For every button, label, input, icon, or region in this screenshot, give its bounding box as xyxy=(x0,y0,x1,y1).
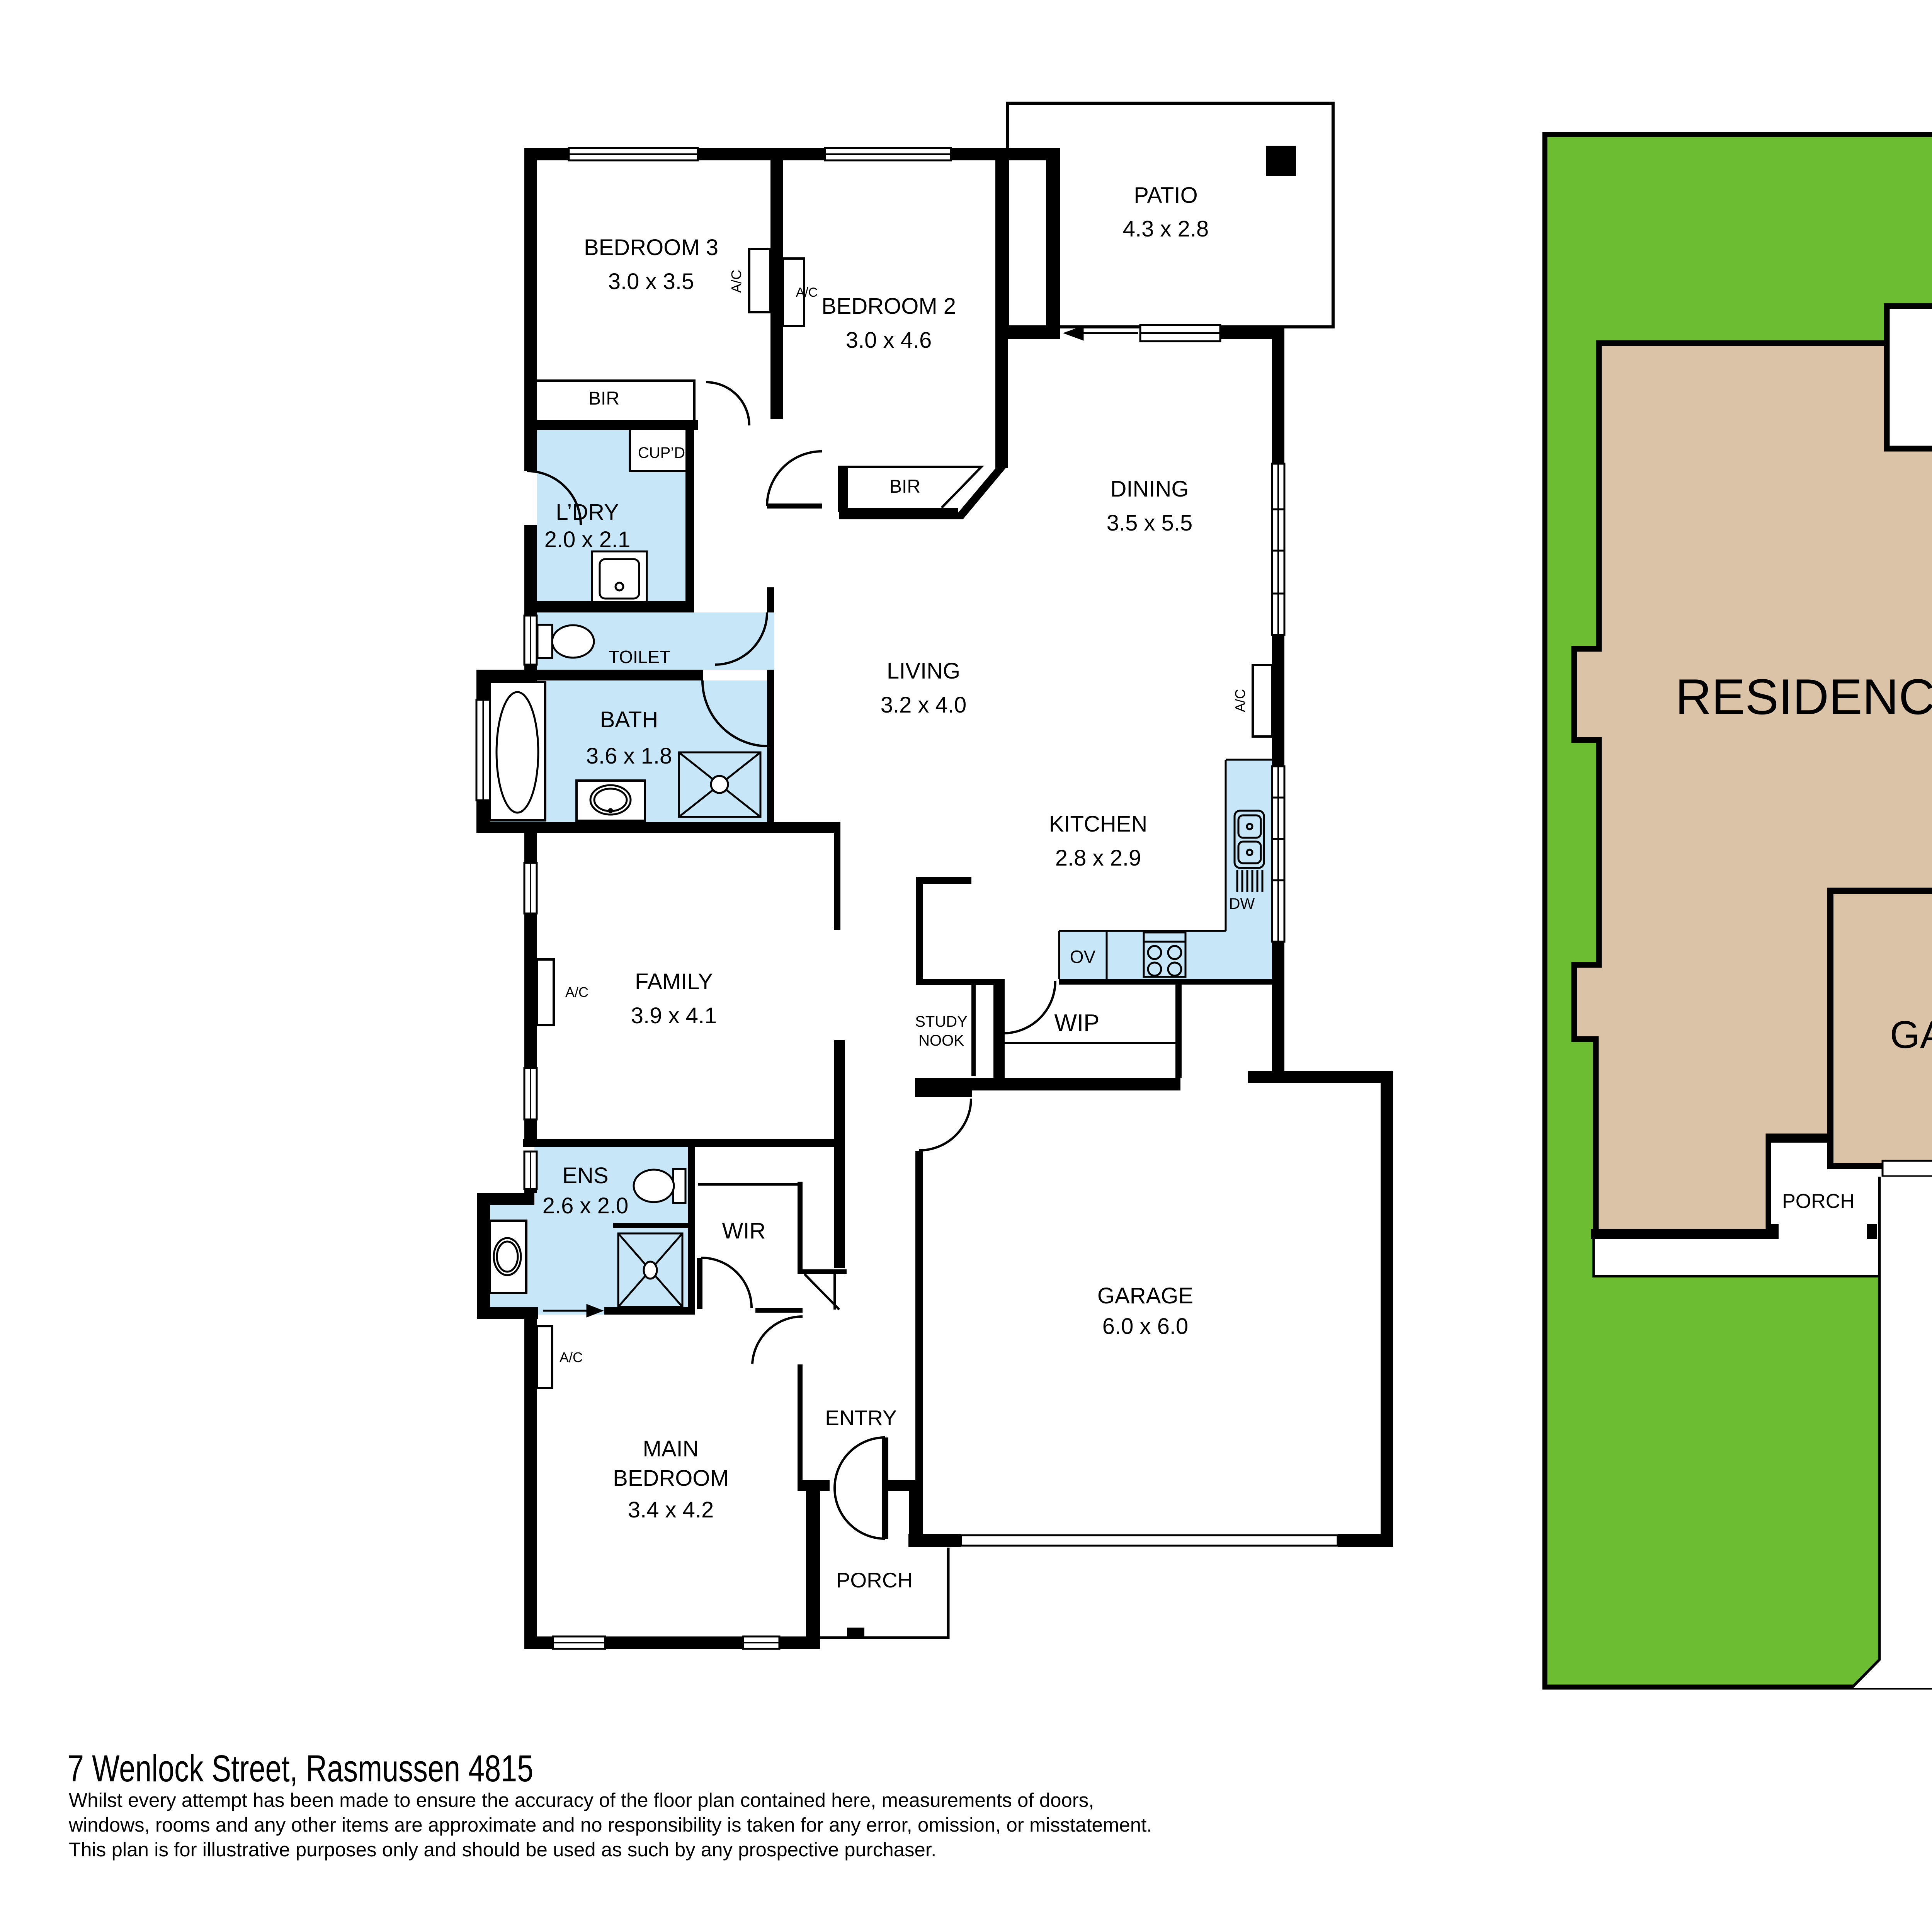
svg-text:3.9 x 4.1: 3.9 x 4.1 xyxy=(631,1003,717,1028)
svg-text:BEDROOM: BEDROOM xyxy=(613,1466,729,1491)
svg-text:BIR: BIR xyxy=(889,476,920,497)
svg-text:4.3 x 2.8: 4.3 x 2.8 xyxy=(1123,216,1209,242)
svg-text:A/C: A/C xyxy=(560,1349,583,1365)
svg-text:3.0 x 4.6: 3.0 x 4.6 xyxy=(846,328,932,353)
svg-text:3.2 x 4.0: 3.2 x 4.0 xyxy=(881,692,966,718)
svg-text:BIR: BIR xyxy=(588,388,619,409)
svg-text:TOILET: TOILET xyxy=(609,647,670,667)
svg-text:PORCH: PORCH xyxy=(836,1568,913,1592)
svg-text:RESIDENCE: RESIDENCE xyxy=(1675,668,1932,725)
svg-text:L’DRY: L’DRY xyxy=(556,500,619,525)
svg-text:GARAGE: GARAGE xyxy=(1097,1283,1193,1308)
svg-text:DW: DW xyxy=(1229,895,1255,912)
svg-text:Whilst every attempt has been: Whilst every attempt has been made to en… xyxy=(69,1789,1094,1811)
svg-text:ENTRY: ENTRY xyxy=(825,1406,896,1430)
svg-text:WIR: WIR xyxy=(722,1218,766,1243)
svg-text:PATIO: PATIO xyxy=(1134,183,1197,208)
svg-text:BEDROOM 2: BEDROOM 2 xyxy=(821,294,956,319)
svg-text:BATH: BATH xyxy=(600,707,658,732)
svg-text:A/C: A/C xyxy=(728,270,744,293)
svg-text:A/C: A/C xyxy=(796,285,818,300)
svg-text:NOOK: NOOK xyxy=(918,1032,964,1049)
svg-text:PORCH: PORCH xyxy=(1782,1190,1855,1213)
svg-text:OV: OV xyxy=(1070,947,1096,967)
svg-text:6.0 x 6.0: 6.0 x 6.0 xyxy=(1102,1314,1188,1339)
svg-text:ENS: ENS xyxy=(562,1163,608,1188)
svg-text:3.4 x 4.2: 3.4 x 4.2 xyxy=(628,1497,714,1522)
svg-text:STUDY: STUDY xyxy=(915,1013,968,1030)
svg-text:KITCHEN: KITCHEN xyxy=(1049,811,1148,837)
svg-text:2.6 x 2.0: 2.6 x 2.0 xyxy=(543,1193,628,1218)
svg-text:3.5 x 5.5: 3.5 x 5.5 xyxy=(1107,510,1192,536)
svg-text:3.0 x 3.5: 3.0 x 3.5 xyxy=(608,269,694,294)
svg-text:2.0 x 2.1: 2.0 x 2.1 xyxy=(544,527,630,552)
svg-text:2.8 x 2.9: 2.8 x 2.9 xyxy=(1055,845,1141,871)
svg-text:LIVING: LIVING xyxy=(887,658,960,684)
svg-text:A/C: A/C xyxy=(1232,689,1248,712)
svg-text:3.6 x 1.8: 3.6 x 1.8 xyxy=(586,743,672,769)
svg-text:DINING: DINING xyxy=(1111,476,1189,502)
svg-text:MAIN: MAIN xyxy=(643,1436,699,1461)
svg-text:This plan is for illustrative: This plan is for illustrative purposes o… xyxy=(69,1839,936,1861)
svg-text:BEDROOM 3: BEDROOM 3 xyxy=(584,235,718,260)
svg-text:GARAGE: GARAGE xyxy=(1890,1013,1932,1056)
svg-text:windows, rooms and any other i: windows, rooms and any other items are a… xyxy=(68,1814,1152,1836)
svg-text:CUP’D: CUP’D xyxy=(638,444,685,461)
svg-text:7 Wenlock Street, Rasmussen 48: 7 Wenlock Street, Rasmussen 4815 xyxy=(68,1748,533,1789)
svg-text:FAMILY: FAMILY xyxy=(635,969,713,994)
svg-text:WIP: WIP xyxy=(1054,1010,1099,1036)
svg-text:A/C: A/C xyxy=(565,984,588,1000)
